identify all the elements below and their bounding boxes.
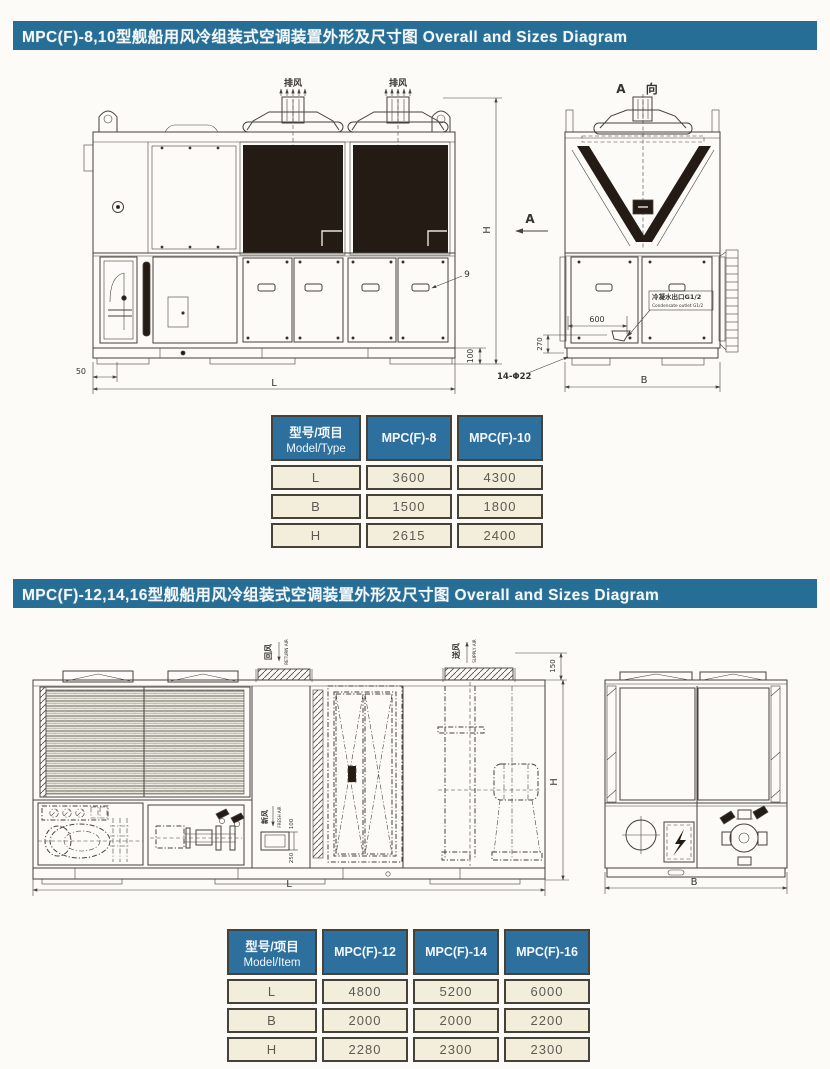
side-ladder-icon [720,250,738,352]
table-row: L 4800 5200 6000 [227,979,590,1004]
return-air-label-en: RETURN AIR [284,639,289,665]
row-value: 2000 [322,1008,408,1033]
row-value: 2300 [413,1037,499,1062]
table1-col-mpcf10: MPC(F)-10 [457,415,543,461]
row-item: B [227,1008,317,1033]
table1-header-en: Model/Type [274,443,358,455]
row-value: 1800 [457,494,543,519]
dim-150: 150 [515,653,567,680]
dim-B-label: B [641,375,648,386]
valve-cluster-icon [720,806,768,865]
drain-label-cn: 冷凝水出口G1/2 [652,292,701,301]
fresh-air-label-cn: 新风 [260,810,269,824]
table-row: H 2615 2400 [271,523,543,548]
row-item: L [271,465,361,490]
row-value: 2400 [457,523,543,548]
table2-header-cn: 型号/项目 [230,936,314,955]
dim-50-label: 50 [76,367,86,376]
row-value: 4300 [457,465,543,490]
section1-title-bar: MPC(F)-8,10型舰船用风冷组装式空调装置外形及尺寸图 Overall a… [13,21,817,50]
valve-assembly-icon [150,809,244,850]
base-frame [607,868,785,877]
condenser-fan-icon [620,672,766,680]
electric-panel-icon [664,822,694,862]
table1-header-model: 型号/项目 Model/Type [271,415,361,461]
side-view-unit-12-16: 回风 RETURN AIR 送风 SUPPLY AIR 150 [33,639,569,896]
drain-label-en: Condensate outlet G1/2 [652,303,703,309]
dimension-lines: B [605,872,787,894]
machinery-compartment [33,800,252,865]
supply-air-label-en: SUPPLY AIR [472,639,477,663]
table-row: L 3600 4300 [271,465,543,490]
dim-B-label: B [691,877,698,888]
fresh-air-label-en: FRESH AIR [277,806,282,827]
row-value: 2000 [413,1008,499,1033]
sight-port-icon [622,816,660,854]
row-value: 3600 [366,465,452,490]
size-table-mpcf-8-10: 型号/项目 Model/Type MPC(F)-8 MPC(F)-10 L 36… [266,411,548,552]
row-value: 5200 [413,979,499,1004]
dim-270-label: 270 [536,337,544,350]
base-frame [93,348,455,364]
table-row: H 2280 2300 2300 [227,1037,590,1062]
internal-fan-and-motor [438,682,542,866]
table2-col-mpcf12: MPC(F)-12 [322,929,408,975]
table-row: B 1500 1800 [271,494,543,519]
supply-air-label-cn: 送风 [451,643,461,660]
diagram-mpcf-12-14-16: 回风 RETURN AIR 送风 SUPPLY AIR 150 [0,618,830,920]
row-value: 2280 [322,1037,408,1062]
row-item: B [271,494,361,519]
condenser-coil-grille [240,142,450,255]
row-item: H [227,1037,317,1062]
return-air-label-cn: 回风 [264,644,273,660]
row-item: H [271,523,361,548]
dim-L-label: L [286,879,292,890]
dim-L-label: L [271,378,277,389]
dim-H-label: H [482,226,493,234]
dim-H-label: H [549,778,560,786]
table2-col-mpcf16: MPC(F)-16 [504,929,590,975]
table1-col-mpcf8: MPC(F)-8 [366,415,452,461]
row-value: 1500 [366,494,452,519]
supply-air-duct: 送风 SUPPLY AIR [443,639,515,682]
end-view-unit-12-16: B [605,672,787,894]
side-view-unit-8-10: 排风 排风 [76,77,502,394]
return-air-duct: 回风 RETURN AIR [256,639,312,682]
base-frame [567,348,718,365]
dim-250-label: 250 [289,852,295,863]
row-value: 4800 [322,979,408,1004]
fresh-air-opening: 新风 FRESH AIR 250 100 [260,806,298,863]
compressor-icon [38,806,143,862]
table2-col-mpcf14: MPC(F)-14 [413,929,499,975]
dim-100-label: 100 [466,349,475,364]
exhaust-air-label: 排风 [284,77,302,89]
electrical-panel-section [113,142,237,253]
row-value: 2615 [366,523,452,548]
table1-header-cn: 型号/项目 [274,422,358,441]
dim-150-label: 150 [549,659,557,672]
row-value: 2300 [504,1037,590,1062]
view-a-arrow-label: A [525,212,535,226]
dim-holes-label: 14-Φ22 [497,372,531,382]
access-panel-row [100,257,448,343]
callout-9-label: 9 [464,270,470,280]
row-value: 2200 [504,1008,590,1033]
diagram-mpcf-8-10: 排风 排风 [0,55,830,411]
section1-title: MPC(F)-8,10型舰船用风冷组装式空调装置外形及尺寸图 Overall a… [22,25,627,47]
condenser-grille-section [40,671,250,797]
end-view-a-direction: A 向 A [497,81,738,392]
size-table-mpcf-12-14-16: 型号/项目 Model/Item MPC(F)-12 MPC(F)-14 MPC… [222,925,595,1066]
table2-header-en: Model/Item [230,957,314,969]
section2-title: MPC(F)-12,14,16型舰船用风冷组装式空调装置外形及尺寸图 Overa… [22,583,659,605]
coil-edge-strip [313,690,323,858]
dim-600-label: 600 [589,315,604,324]
dim-100-label: 100 [289,818,295,829]
table2-header-model: 型号/项目 Model/Item [227,929,317,975]
view-a-title: A 向 [616,81,665,96]
exhaust-air-label: 排风 [389,77,407,89]
row-value: 6000 [504,979,590,1004]
row-item: L [227,979,317,1004]
filter-frame-x-brace [328,686,402,862]
table-row: B 2000 2000 2200 [227,1008,590,1033]
drain-and-dimensions: 600 冷凝水出口G1/2 Condensate outlet G1/2 270… [497,291,720,392]
section2-title-bar: MPC(F)-12,14,16型舰船用风冷组装式空调装置外形及尺寸图 Overa… [13,579,817,608]
